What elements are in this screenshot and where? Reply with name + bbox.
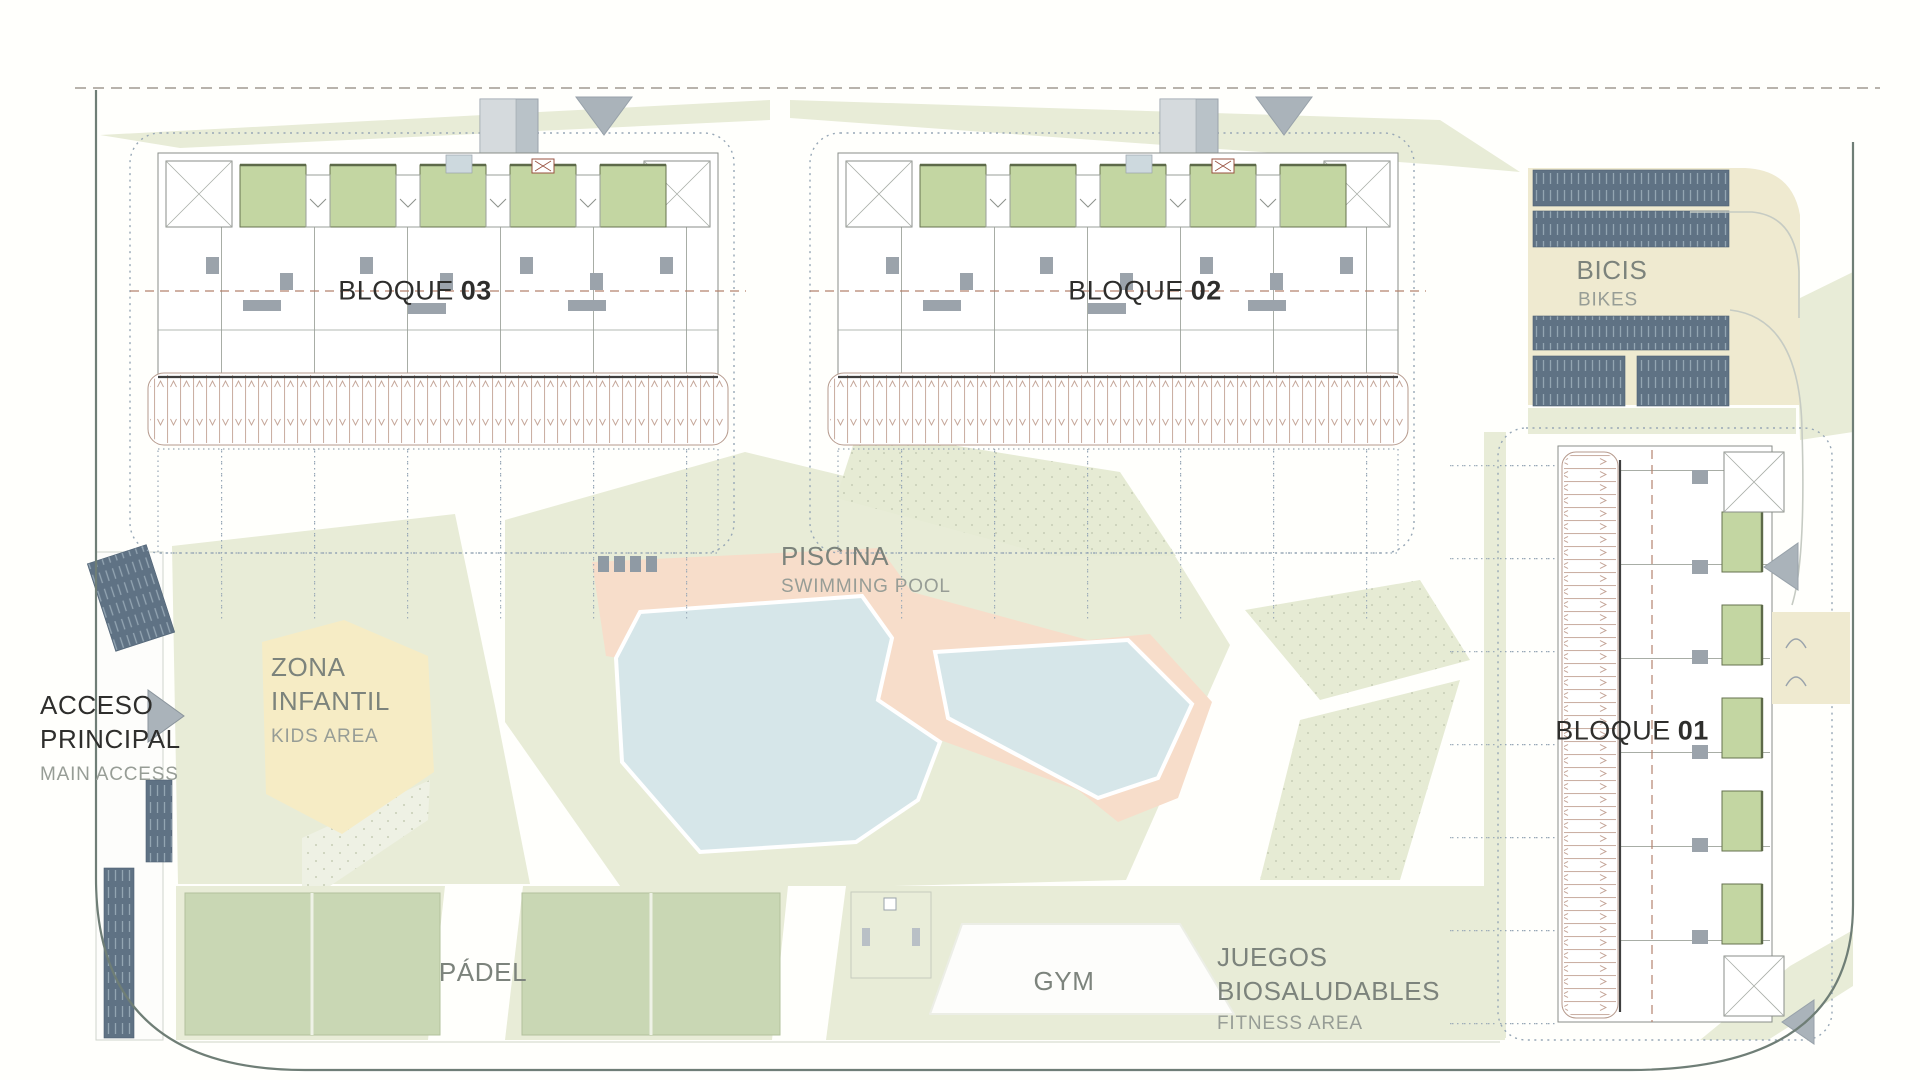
label-bloque-02: BLOQUE02 xyxy=(1068,276,1222,307)
bloque-02-name: BLOQUE xyxy=(1068,276,1184,306)
bloque-02-number: 02 xyxy=(1191,276,1222,306)
label-padel: PÁDEL xyxy=(439,957,527,989)
label-acceso-principal: ACCESO PRINCIPAL MAIN ACCESS xyxy=(40,690,181,787)
label-juegos-biosaludables: JUEGOS BIOSALUDABLES FITNESS AREA xyxy=(1217,942,1440,1036)
pool-water-main xyxy=(616,596,940,852)
label-piscina: PISCINA SWIMMING POOL xyxy=(781,541,951,598)
label-zona-infantil: ZONA INFANTIL KIDS AREA xyxy=(271,652,390,749)
bloque-01-number: 01 xyxy=(1678,716,1709,746)
label-bikes: BIKES xyxy=(1578,288,1638,311)
bloque-03-building xyxy=(130,97,746,619)
site-plan: BLOQUE03 BLOQUE02 BLOQUE01 BICIS BIKES P… xyxy=(0,0,1920,1080)
pergola-area xyxy=(1772,612,1850,704)
parking-strip xyxy=(146,780,172,862)
bloque-03-number: 03 xyxy=(461,276,492,306)
site-plan-drawing xyxy=(0,0,1920,1080)
label-gym: GYM xyxy=(1033,966,1094,998)
bloque-03-name: BLOQUE xyxy=(338,276,454,306)
label-bloque-01: BLOQUE01 xyxy=(1555,716,1709,747)
bike-parking xyxy=(1528,168,1800,406)
label-bicis: BICIS xyxy=(1577,255,1648,287)
petanque-plot xyxy=(851,892,931,978)
parking-strip xyxy=(104,868,134,1038)
label-bloque-03: BLOQUE03 xyxy=(338,276,492,307)
bloque-01-name: BLOQUE xyxy=(1555,716,1671,746)
